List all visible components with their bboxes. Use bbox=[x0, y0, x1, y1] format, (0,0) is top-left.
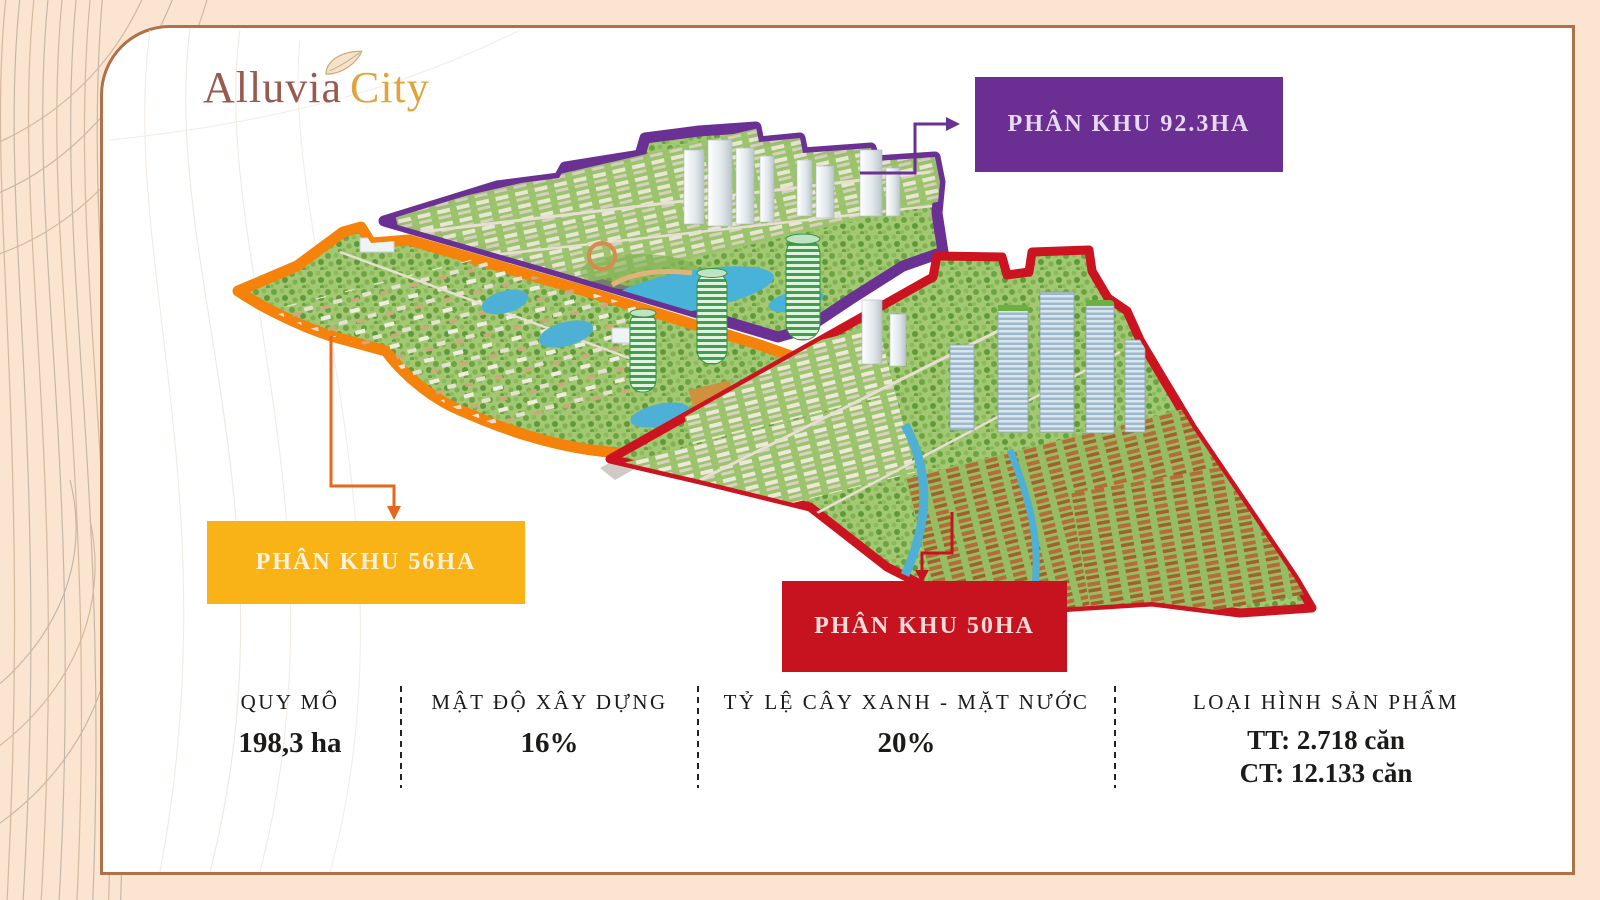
stat-value: CT: 12.133 căn bbox=[1116, 758, 1536, 789]
stat-cay-xanh: TỶ LỆ CÂY XANH - MẶT NƯỚC 20% bbox=[699, 676, 1114, 789]
stat-label: MẬT ĐỘ XÂY DỰNG bbox=[402, 690, 697, 715]
callout-label-92ha: PHÂN KHU 92.3HA bbox=[1008, 111, 1251, 138]
stat-quy-mo: QUY MÔ 198,3 ha bbox=[180, 676, 400, 789]
stat-value: 20% bbox=[699, 727, 1114, 760]
stat-mat-do: MẬT ĐỘ XÂY DỰNG 16% bbox=[402, 676, 697, 789]
stat-value: 198,3 ha bbox=[180, 727, 400, 760]
callout-label-56ha: PHÂN KHU 56HA bbox=[256, 549, 477, 576]
callout-box-92ha: PHÂN KHU 92.3HA bbox=[975, 77, 1283, 172]
page-background: AlluviaCity PHÂN KHU 92.3HA PHÂN KHU 56H… bbox=[0, 0, 1600, 900]
stat-label: LOẠI HÌNH SẢN PHẨM bbox=[1116, 690, 1536, 715]
callout-box-50ha: PHÂN KHU 50HA bbox=[782, 581, 1067, 672]
callout-box-56ha: PHÂN KHU 56HA bbox=[207, 521, 525, 604]
stat-label: QUY MÔ bbox=[180, 690, 400, 715]
brand-logo: AlluviaCity bbox=[203, 62, 430, 113]
stat-value: 16% bbox=[402, 727, 697, 760]
callout-label-50ha: PHÂN KHU 50HA bbox=[814, 613, 1035, 640]
leaf-icon bbox=[322, 48, 371, 81]
stat-label: TỶ LỆ CÂY XANH - MẶT NƯỚC bbox=[699, 690, 1114, 715]
brand-name: Alluvia bbox=[203, 63, 342, 112]
stats-section: QUY MÔ 198,3 ha MẬT ĐỘ XÂY DỰNG 16% TỶ L… bbox=[180, 676, 1540, 789]
stat-value: TT: 2.718 căn bbox=[1116, 725, 1536, 756]
stat-san-pham: LOẠI HÌNH SẢN PHẨM TT: 2.718 căn CT: 12.… bbox=[1116, 676, 1536, 789]
